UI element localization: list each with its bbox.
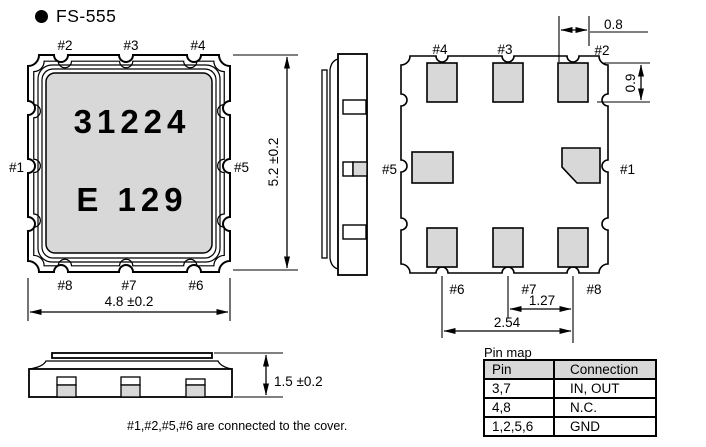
- bottom-view: [401, 56, 608, 273]
- front-view-cover: [52, 353, 212, 358]
- top-view-pin6-label: #6: [188, 278, 203, 293]
- pad-4: [427, 63, 457, 102]
- marking-area: [46, 73, 212, 253]
- pin-map-table: Pin Connection 3,7 IN, OUT 4,8 N.C. 1,2,…: [483, 359, 657, 437]
- part-number: FS-555: [56, 6, 116, 27]
- side-view-pad-bottom: [343, 225, 366, 239]
- dim-pad-pitch: 1.27: [508, 276, 573, 343]
- pin-map-row: 3,7 IN, OUT: [484, 379, 656, 398]
- side-view-cover-plate: [322, 70, 327, 258]
- front-pad-2: [121, 385, 140, 397]
- pin-map-header-connection: Connection: [554, 360, 656, 379]
- pin-map-cell-connection: GND: [554, 417, 656, 436]
- side-view-pad-top: [343, 100, 366, 114]
- bottom-view-pin8-label: #8: [586, 282, 601, 297]
- dim-pad-width-value: 0.8: [604, 17, 623, 32]
- top-view-pin8-label: #8: [57, 278, 72, 293]
- dim-width-value: 4.8 ±0.2: [105, 294, 154, 309]
- dim-height-value: 5.2 ±0.2: [266, 138, 281, 187]
- top-view-pin3-label: #3: [123, 38, 138, 53]
- pin-map-row: 1,2,5,6 GND: [484, 417, 656, 436]
- dim-thickness-value: 1.5 ±0.2: [274, 374, 323, 389]
- pin-map-caption: Pin map: [484, 345, 532, 360]
- side-view-pad-mid: [353, 162, 367, 176]
- part-title: FS-555: [35, 6, 116, 27]
- pad-5: [412, 152, 453, 183]
- dim-span-value: 2.54: [494, 315, 521, 330]
- bottom-view-pin6-label: #6: [449, 282, 464, 297]
- front-pad-seat-3: [186, 379, 205, 385]
- datasheet-drawing: 31224 E 129 #2 #3 #4 #1 #5 #8 #7 #6 4.8 …: [0, 0, 706, 447]
- pad-8: [558, 228, 588, 267]
- top-view-pin4-label: #4: [190, 38, 206, 53]
- pin-map-cell-pins: 4,8: [484, 398, 554, 417]
- marking-line-1: 31224: [74, 103, 191, 140]
- pin-map-row: 4,8 N.C.: [484, 398, 656, 417]
- pin-map-cell-pins: 3,7: [484, 379, 554, 398]
- front-view-shoulder: [29, 361, 232, 369]
- top-view-pin7-label: #7: [121, 278, 136, 293]
- dim-pitch-value: 1.27: [529, 293, 555, 308]
- side-view-pad-mid-inner: [343, 162, 353, 176]
- bottom-view-pin5-label: #5: [382, 162, 397, 177]
- pad-3: [493, 63, 523, 102]
- pad-7: [493, 228, 523, 267]
- front-pad-seat-2: [121, 377, 140, 385]
- bottom-view-pin3-label: #3: [497, 42, 512, 57]
- pad-6: [427, 228, 457, 267]
- top-view-pin5-label: #5: [234, 160, 249, 175]
- marking-line-2: E 129: [76, 181, 187, 218]
- pad-2: [558, 63, 588, 102]
- front-pad-3: [186, 385, 205, 397]
- bottom-view-pin1-label: #1: [620, 162, 635, 177]
- pin-map-cell-connection: IN, OUT: [554, 379, 656, 398]
- bottom-view-pin4-label: #4: [432, 42, 448, 57]
- front-pad-1: [57, 385, 76, 397]
- dim-pad-height-value: 0.9: [623, 74, 638, 93]
- pin-map-header-pin: Pin: [484, 360, 554, 379]
- pin-map-cell-connection: N.C.: [554, 398, 656, 417]
- front-pad-seat-1: [57, 377, 76, 385]
- bullet-icon: [35, 10, 48, 23]
- side-view: [322, 54, 367, 275]
- top-view: 31224 E 129: [28, 55, 230, 272]
- front-view: [29, 353, 232, 397]
- top-view-pin2-label: #2: [57, 38, 72, 53]
- pin-map-header-row: Pin Connection: [484, 360, 656, 379]
- top-view-pin1-label: #1: [9, 160, 24, 175]
- side-view-flange: [330, 59, 338, 269]
- pin-map-cell-pins: 1,2,5,6: [484, 417, 554, 436]
- bottom-view-pin2-label: #2: [594, 43, 609, 58]
- cover-connection-note: #1,#2,#5,#6 are connected to the cover.: [127, 419, 347, 433]
